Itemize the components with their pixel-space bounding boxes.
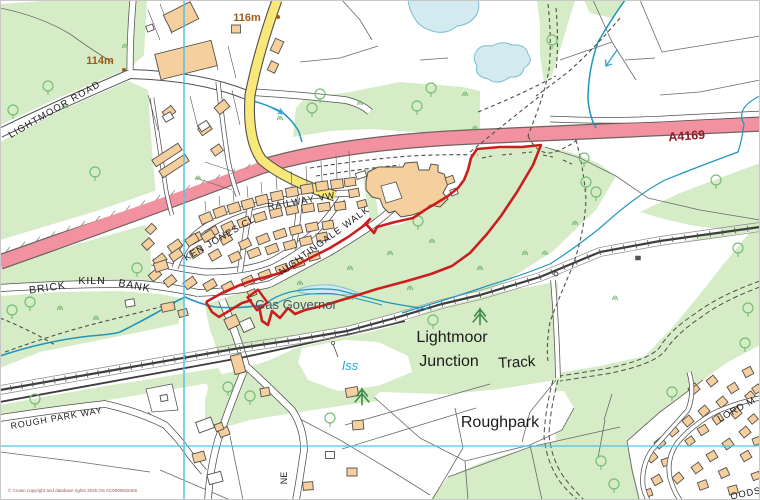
svg-text:116m: 116m: [233, 12, 261, 24]
svg-text:114m: 114m: [86, 55, 114, 67]
svg-text:Junction: Junction: [419, 353, 479, 370]
svg-text:Roughpark: Roughpark: [461, 414, 540, 431]
svg-text:© Crown copyright and database: © Crown copyright and database rights 20…: [8, 487, 138, 493]
svg-text:KILN: KILN: [78, 275, 105, 287]
svg-text:Gas Governor: Gas Governor: [255, 297, 337, 312]
svg-text:A4169: A4169: [668, 128, 706, 145]
svg-text:NE: NE: [279, 472, 289, 485]
svg-text:Track: Track: [498, 353, 536, 372]
svg-text:Lightmoor: Lightmoor: [416, 329, 488, 346]
svg-text:Iss: Iss: [342, 358, 359, 373]
